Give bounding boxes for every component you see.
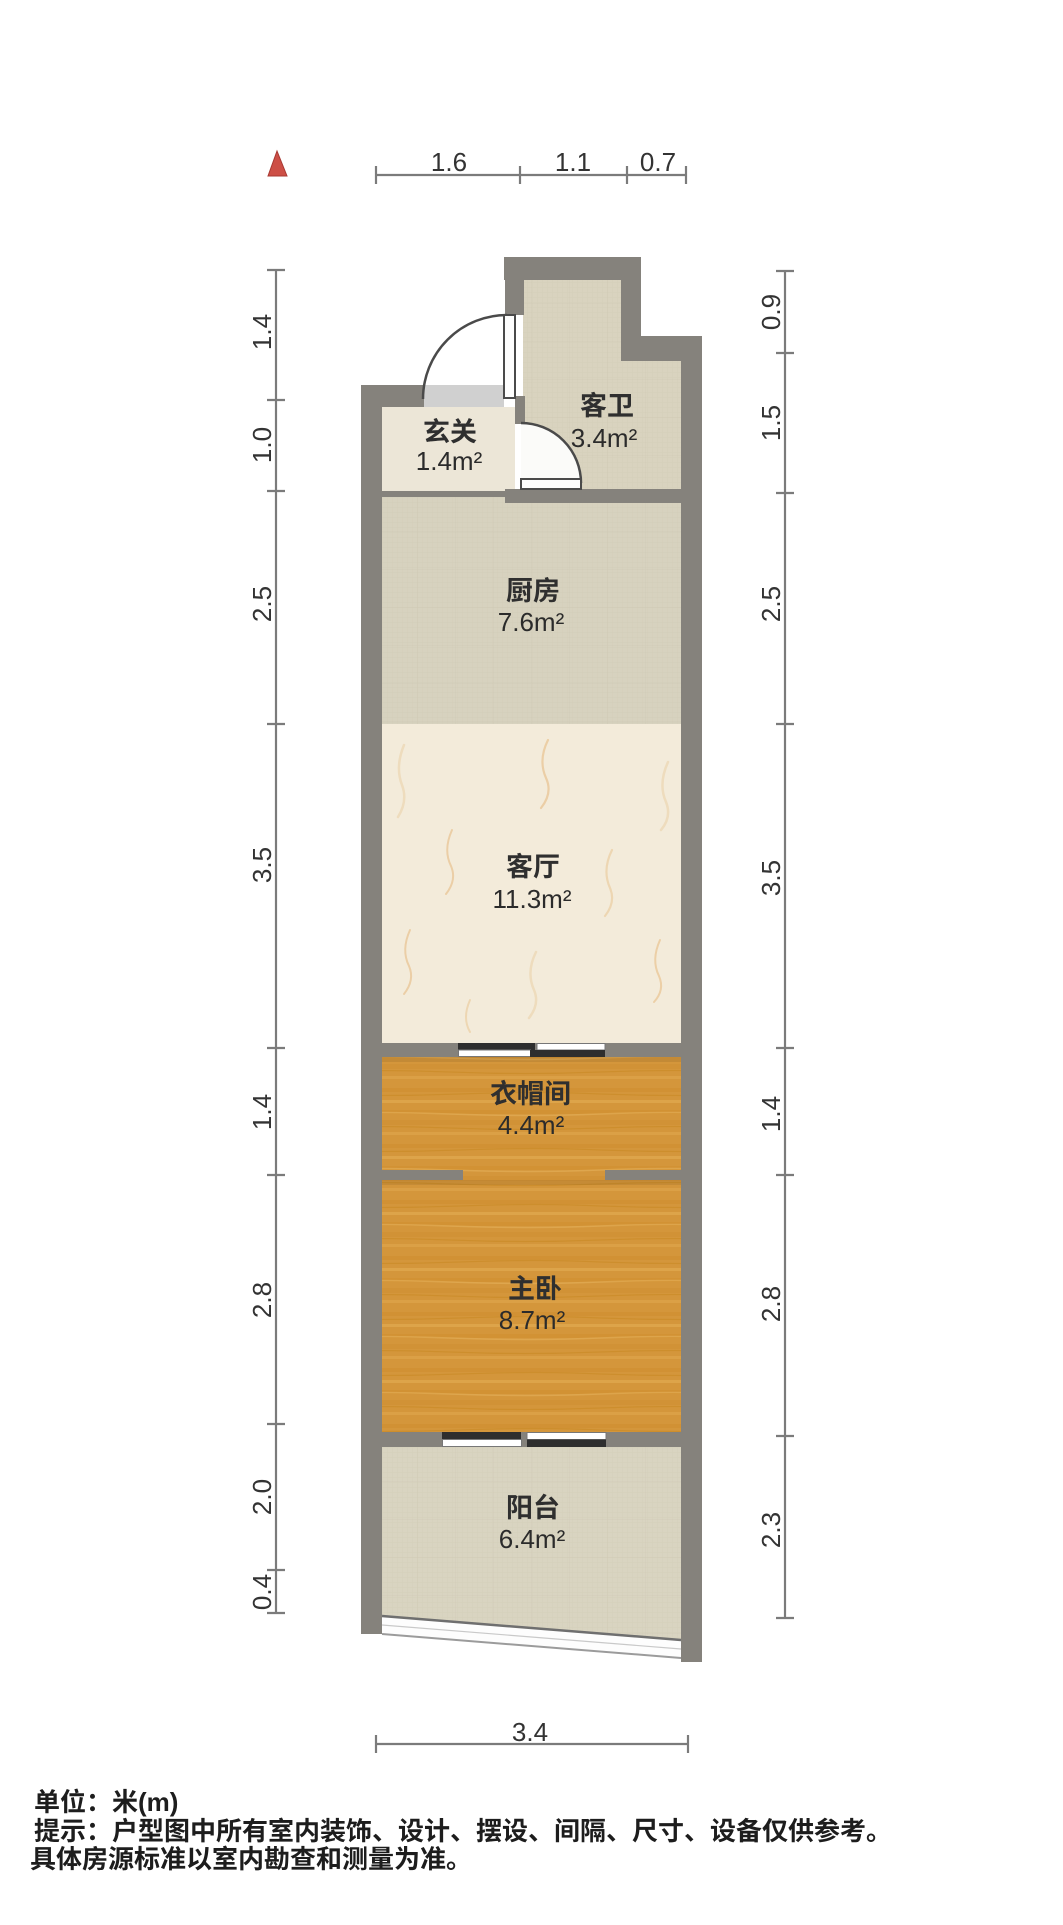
svg-text:1.4: 1.4 xyxy=(756,1096,786,1132)
svg-text:1.5: 1.5 xyxy=(756,405,786,441)
svg-text:3.4: 3.4 xyxy=(512,1717,548,1747)
svg-text:3.4m²: 3.4m² xyxy=(571,423,638,453)
svg-text:2.0: 2.0 xyxy=(247,1479,277,1515)
svg-text:7.6m²: 7.6m² xyxy=(498,607,565,637)
svg-text:1.4: 1.4 xyxy=(247,314,277,350)
svg-text:(m): (m) xyxy=(138,1787,178,1817)
svg-text:1.4: 1.4 xyxy=(247,1094,277,1130)
svg-text:2.5: 2.5 xyxy=(247,586,277,622)
svg-text:8.7m²: 8.7m² xyxy=(499,1305,566,1335)
svg-text:1.4m²: 1.4m² xyxy=(416,446,483,476)
svg-text:1.1: 1.1 xyxy=(555,147,591,177)
svg-text:4.4m²: 4.4m² xyxy=(498,1110,565,1140)
svg-text:1.0: 1.0 xyxy=(247,427,277,463)
svg-text:2.8: 2.8 xyxy=(756,1286,786,1322)
svg-text:11.3m²: 11.3m² xyxy=(493,884,572,914)
svg-text:6.4m²: 6.4m² xyxy=(499,1524,566,1554)
svg-text:0.4: 0.4 xyxy=(247,1574,277,1610)
svg-text:2.3: 2.3 xyxy=(756,1512,786,1548)
svg-text:0.9: 0.9 xyxy=(756,294,786,330)
svg-text:0.7: 0.7 xyxy=(640,147,676,177)
svg-text:2.5: 2.5 xyxy=(756,586,786,622)
svg-text:2.8: 2.8 xyxy=(247,1282,277,1318)
svg-text:3.5: 3.5 xyxy=(247,847,277,883)
svg-text:3.5: 3.5 xyxy=(756,860,786,896)
svg-text:1.6: 1.6 xyxy=(431,147,467,177)
